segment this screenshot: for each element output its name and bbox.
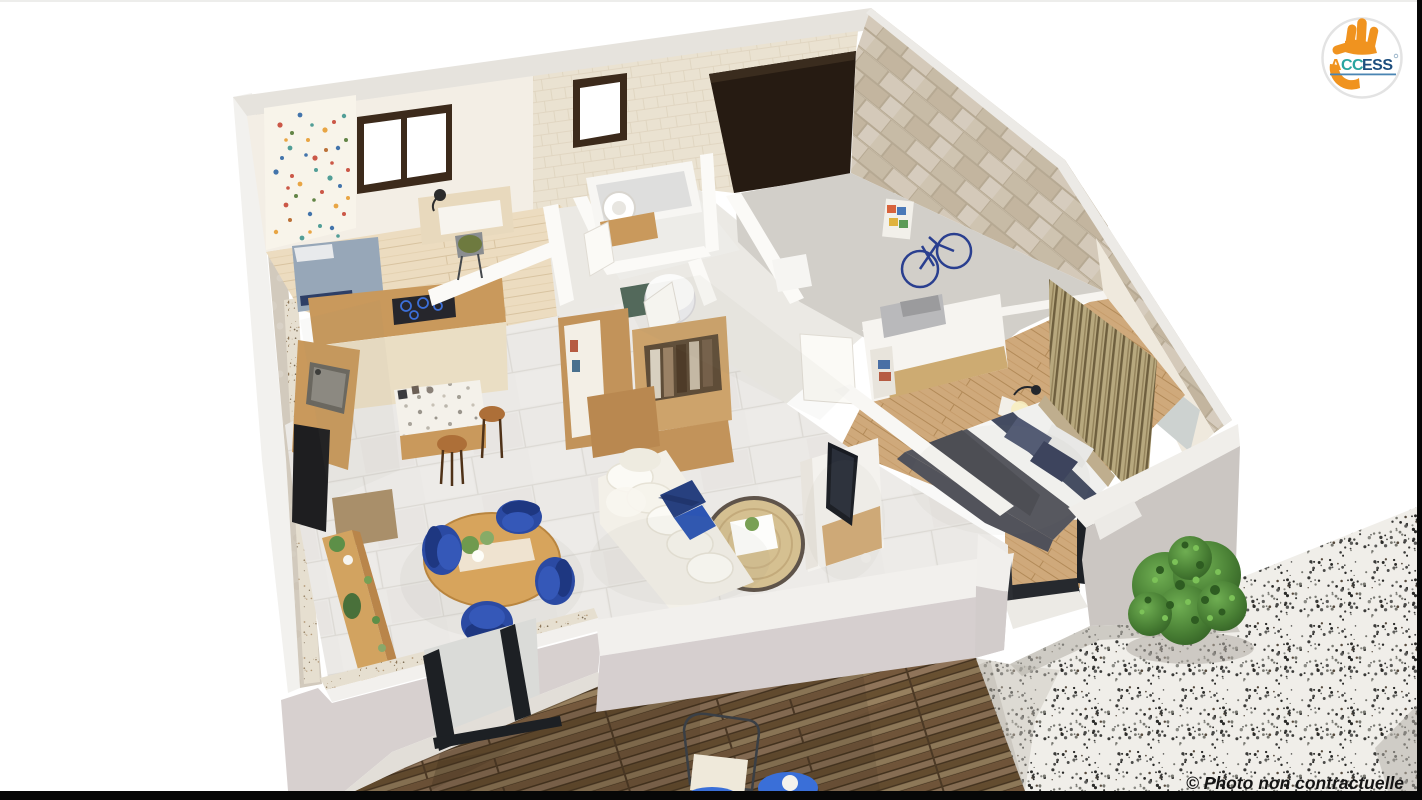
svg-text:CC: CC bbox=[1341, 57, 1364, 74]
svg-text:© Photo non contractuelle: © Photo non contractuelle bbox=[1186, 773, 1404, 793]
svg-text:ESS: ESS bbox=[1362, 57, 1393, 74]
